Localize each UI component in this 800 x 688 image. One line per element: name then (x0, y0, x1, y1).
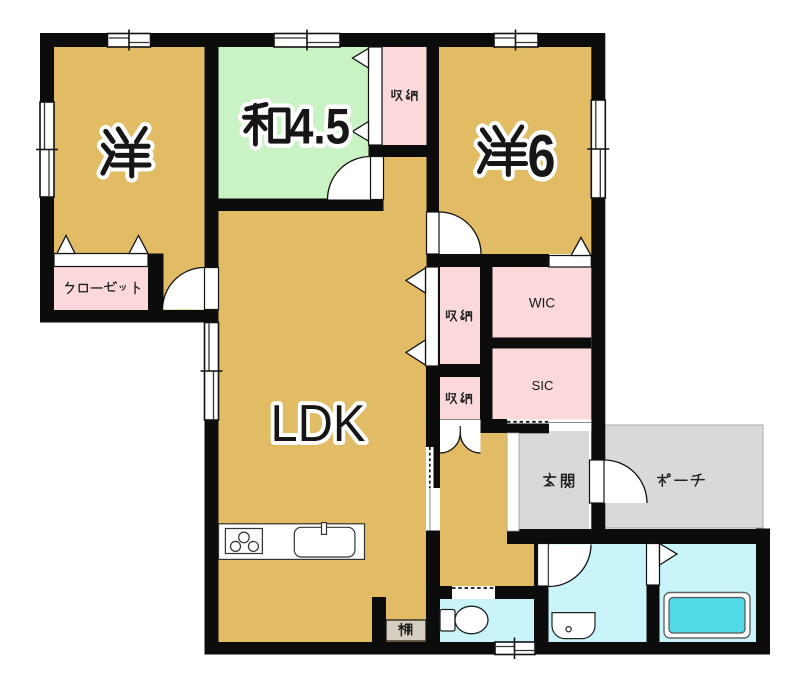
svg-text:SIC: SIC (532, 378, 554, 393)
svg-text:4.5: 4.5 (289, 99, 350, 155)
svg-text:6: 6 (528, 123, 556, 190)
svg-text:WIC: WIC (529, 296, 555, 311)
svg-text:LDK: LDK (271, 395, 366, 453)
